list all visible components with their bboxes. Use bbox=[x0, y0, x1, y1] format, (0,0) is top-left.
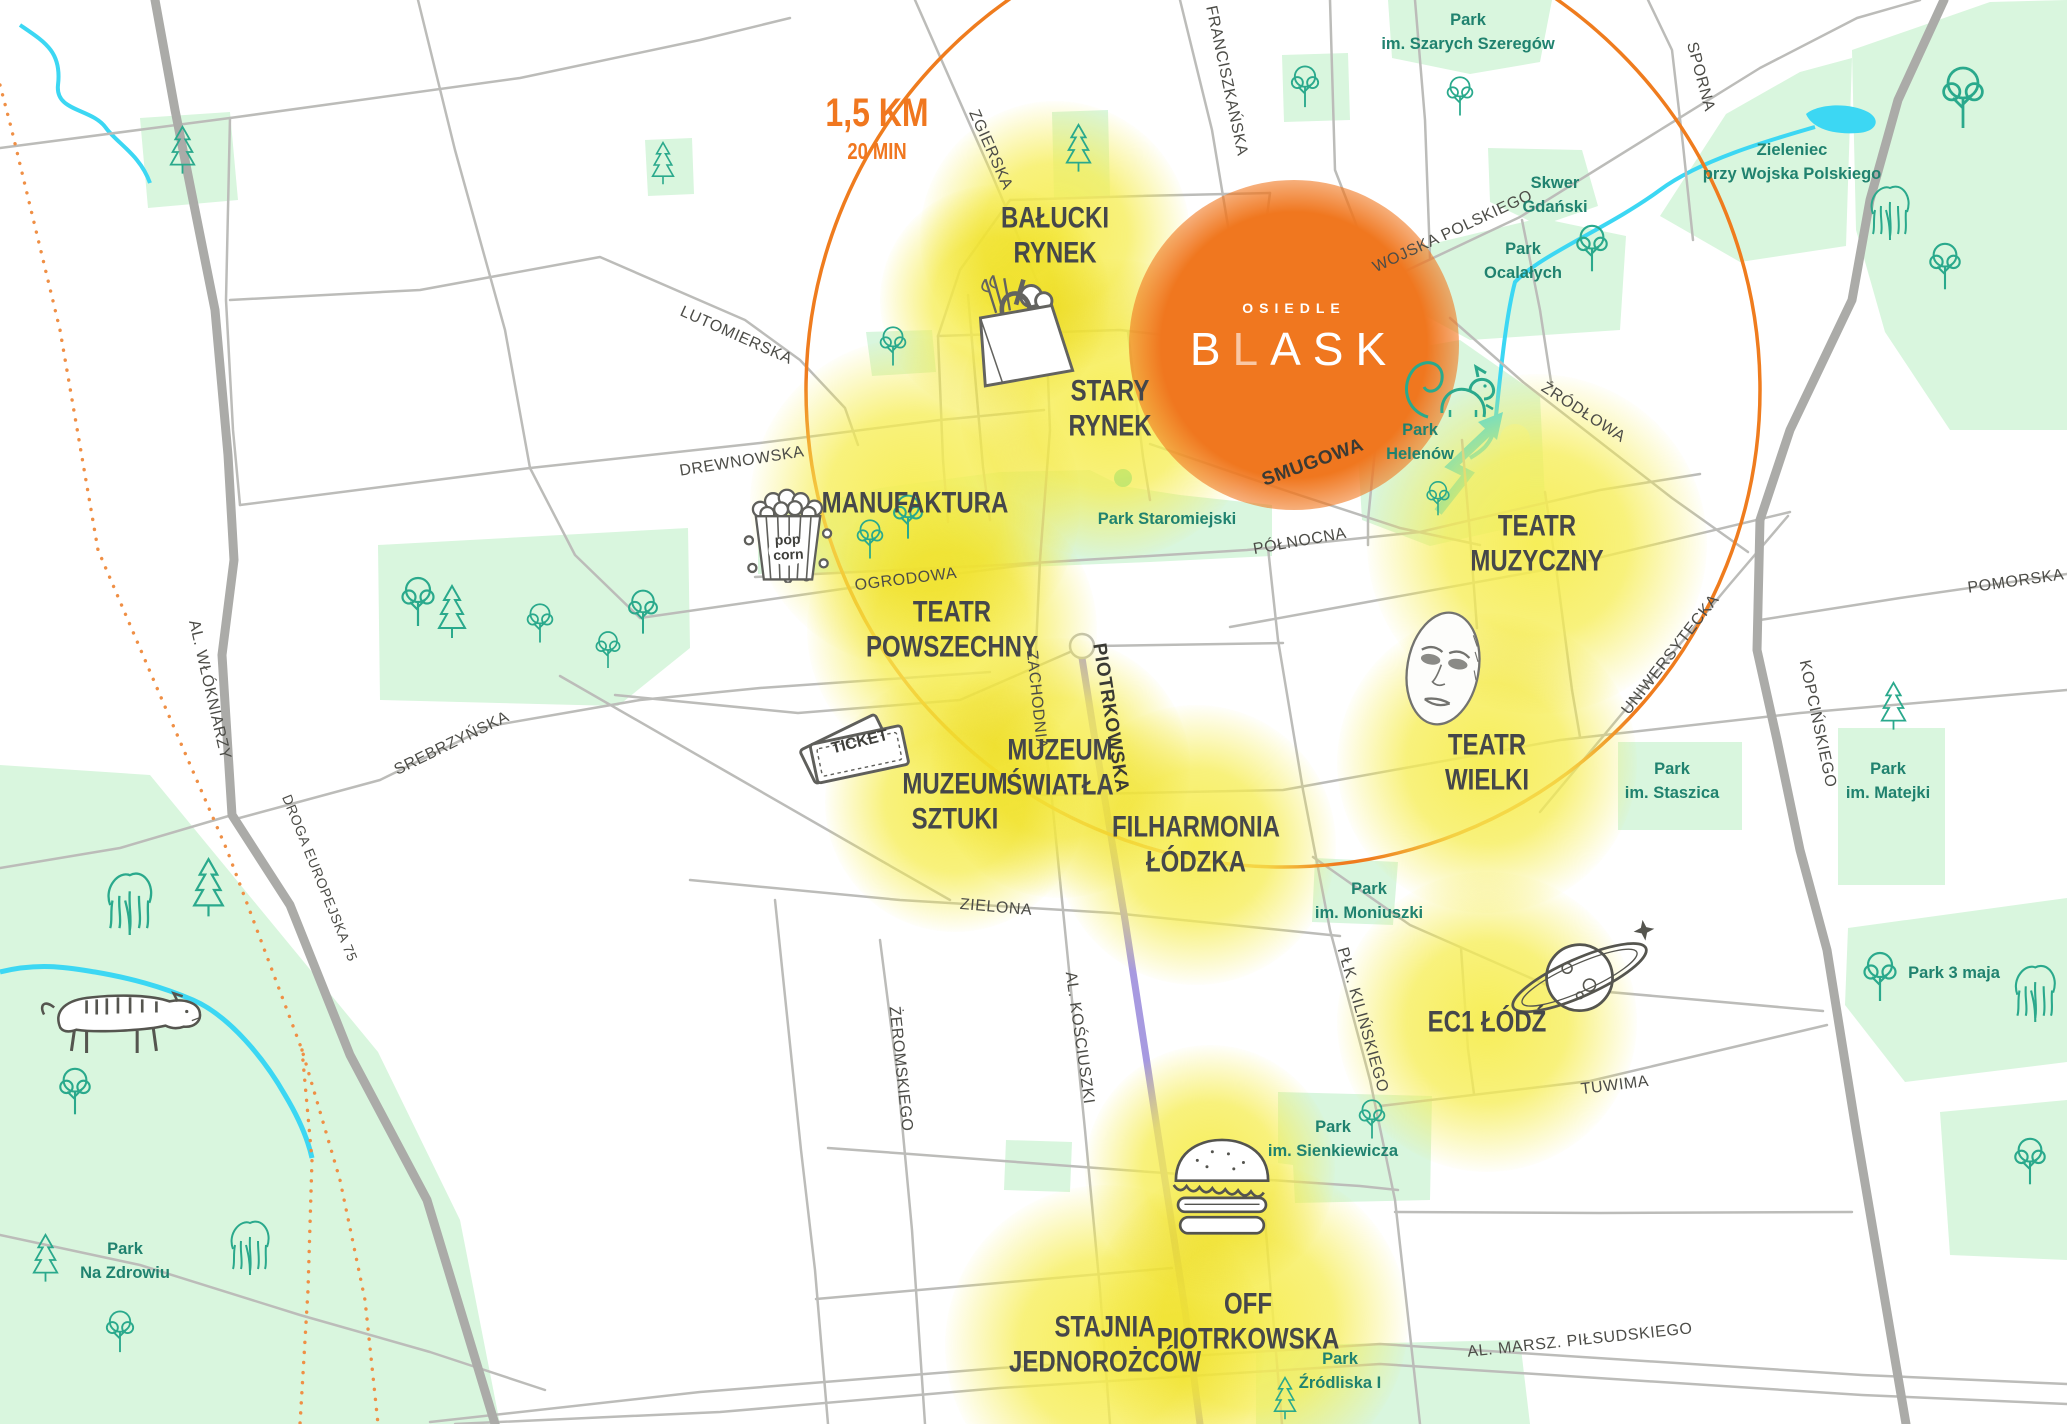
street-label--eromskiego: ŻEROMSKIEGO bbox=[884, 1006, 915, 1133]
attraction-label-teatr-muzyczny-line: MUZYCZNY bbox=[1470, 544, 1603, 579]
attraction-label-off-piotrkowska-line: OFF bbox=[1157, 1287, 1340, 1322]
park-label-skwer-gda-ski-line: Skwer bbox=[1522, 172, 1587, 196]
round-tree-icon bbox=[1860, 949, 1900, 1001]
street-label-kopci-skiego-line: KOPCIŃSKIEGO bbox=[1795, 659, 1840, 790]
attraction-label-muzeum-sztuki: MUZEUMSZTUKI bbox=[902, 767, 1007, 838]
illustration-text: popcorn bbox=[772, 532, 804, 563]
park-label-park-na-zdrowiu-line: Na Zdrowiu bbox=[80, 1262, 170, 1286]
plac-wolnosci-roundabout bbox=[1070, 634, 1094, 658]
attraction-label-stajnia-jednorożców-line: STAJNIA bbox=[1009, 1310, 1201, 1345]
conifer-tree-icon bbox=[1065, 123, 1092, 173]
attraction-label-teatr-powszechny-line: POWSZECHNY bbox=[866, 630, 1038, 665]
attraction-label-ec1 łódź-line: EC1 ŁÓDŹ bbox=[1428, 1004, 1547, 1039]
street-label--eromskiego-line: ŻEROMSKIEGO bbox=[884, 1006, 915, 1133]
park-label-park-im-moniuszki-line: im. Moniuszki bbox=[1315, 902, 1423, 926]
attraction-label-teatr-wielki-line: TEATR bbox=[1445, 728, 1529, 763]
illustration-text-line: corn bbox=[773, 546, 804, 562]
street-label-franciszka-ska: FRANCISZKAŃSKA bbox=[1201, 4, 1250, 158]
street-label-zielona-line: ZIELONA bbox=[959, 896, 1033, 920]
attraction-label-muzeum-sztuki-line: SZTUKI bbox=[902, 802, 1007, 837]
attraction-glow bbox=[1056, 705, 1336, 985]
street-label-p-k-kili-skiego-line: PŁK. KILIŃSKIEGO bbox=[1333, 945, 1392, 1094]
attraction-label-off-piotrkowska: OFFPIOTRKOWSKA bbox=[1157, 1287, 1340, 1358]
willow-tree-icon bbox=[2009, 959, 2062, 1022]
park-label-park-im-matejki: Parkim. Matejki bbox=[1846, 758, 1930, 806]
street-label-uniwersytecka: UNIWERSYTECKA bbox=[1619, 591, 1724, 718]
street-label-uniwersytecka-line: UNIWERSYTECKA bbox=[1619, 591, 1724, 718]
street-label-p-k-kili-skiego: PŁK. KILIŃSKIEGO bbox=[1333, 945, 1392, 1094]
attraction-glow bbox=[807, 485, 1097, 775]
park-label-park-im-sienkiewicza-line: im. Sienkiewicza bbox=[1268, 1140, 1398, 1164]
willow-tree-icon bbox=[1865, 180, 1915, 240]
attraction-label-muzeum-światła: MUZEUMŚWIATŁA bbox=[1006, 733, 1114, 804]
round-tree-icon bbox=[854, 517, 886, 559]
railway-dotted-line bbox=[0, 85, 378, 1424]
street-label-zachodnia-line: ZACHODNIA bbox=[1022, 650, 1050, 751]
street-label-zachodnia: ZACHODNIA bbox=[1022, 650, 1050, 751]
street-label-kopci-skiego: KOPCIŃSKIEGO bbox=[1795, 659, 1840, 790]
saturn-icon bbox=[1493, 909, 1672, 1041]
attraction-label-filharmonia-łódzka: FILHARMONIAŁÓDZKA bbox=[1112, 810, 1280, 881]
attraction-label-stary-rynek-line: RYNEK bbox=[1068, 409, 1151, 444]
park-label-park-im-sienkiewicza: Parkim. Sienkiewicza bbox=[1268, 1116, 1398, 1164]
round-tree-icon bbox=[524, 601, 556, 643]
park-label-zieleniec-przy-wojska-polskiego: Zieleniecprzy Wojska Polskiego bbox=[1703, 139, 1882, 187]
street-label-srebrzy-ska: SREBRZYŃSKA bbox=[392, 708, 513, 779]
street-label-al-marsz-pi-sudskiego-line: AL. MARSZ. PIŁSUDSKIEGO bbox=[1467, 1320, 1694, 1362]
round-tree-icon bbox=[398, 574, 438, 626]
attraction-label-muzeum-światła-line: ŚWIATŁA bbox=[1006, 768, 1114, 803]
attraction-glow bbox=[1337, 872, 1637, 1172]
piotrkowska-highlight-line bbox=[1082, 658, 1200, 1424]
water-features bbox=[0, 25, 1876, 1158]
willow-tree-icon bbox=[225, 1215, 275, 1275]
street-label-zgierska-line: ZGIERSKA bbox=[964, 107, 1015, 193]
illustration-text: TICKET bbox=[830, 728, 890, 758]
street-label-piotrkowska: PIOTRKOWSKA bbox=[1087, 642, 1132, 795]
round-tree-icon bbox=[1356, 1097, 1388, 1139]
round-tree-icon bbox=[103, 1308, 137, 1352]
street-label-al-w-kniarzy: AL. WŁÓKNIARZY bbox=[184, 618, 234, 761]
attraction-label-manufaktura: MANUFAKTURA bbox=[822, 485, 1009, 520]
park-label-park-ocala-ych-line: Park bbox=[1484, 238, 1562, 262]
attraction-label-teatr-powszechny: TEATRPOWSZECHNY bbox=[866, 595, 1038, 666]
park-label-park-im-szarych-szereg-w-line: im. Szarych Szeregów bbox=[1381, 33, 1554, 57]
round-tree-icon bbox=[1288, 63, 1322, 107]
illustrations-layer bbox=[0, 0, 2067, 1424]
attraction-label-bałucki-rynek-line: RYNEK bbox=[1001, 236, 1109, 271]
attraction-label-stajnia-jednorożców-line: JEDNOROŻCÓW bbox=[1009, 1345, 1201, 1380]
willow-tree-icon bbox=[101, 866, 159, 935]
round-tree-icon bbox=[56, 1065, 94, 1114]
park-label-park-im-szarych-szereg-w-line: Park bbox=[1381, 9, 1554, 33]
illustration-text-line: TICKET bbox=[830, 728, 890, 758]
street-label-pomorska: POMORSKA bbox=[1967, 566, 2066, 597]
street-label-al-marsz-pi-sudskiego: AL. MARSZ. PIŁSUDSKIEGO bbox=[1467, 1320, 1694, 1362]
street-label-pomorska-line: POMORSKA bbox=[1967, 566, 2066, 597]
conifer-tree-icon bbox=[1880, 681, 1907, 731]
park-label-zieleniec-przy-wojska-polskiego-line: przy Wojska Polskiego bbox=[1703, 163, 1882, 187]
park-label-park-im-moniuszki: Parkim. Moniuszki bbox=[1315, 878, 1423, 926]
attraction-label-filharmonia-łódzka-line: ŁÓDZKA bbox=[1112, 845, 1280, 880]
attraction-glow bbox=[945, 1185, 1265, 1424]
roads-major bbox=[155, 0, 1944, 1424]
attraction-label-manufaktura-line: MANUFAKTURA bbox=[822, 485, 1009, 520]
street-label-lutomierska: LUTOMIERSKA bbox=[677, 303, 795, 369]
attraction-label-bałucki-rynek-line: BAŁUCKI bbox=[1001, 201, 1109, 236]
round-tree-icon bbox=[2011, 1135, 2049, 1184]
round-tree-icon bbox=[890, 492, 926, 539]
theater-mask-icon bbox=[1387, 597, 1500, 738]
conifer-tree-icon bbox=[437, 584, 467, 640]
attraction-label-stajnia-jednorożców: STAJNIAJEDNOROŻCÓW bbox=[1009, 1310, 1201, 1381]
grocery-bag-icon bbox=[956, 258, 1080, 391]
round-tree-icon bbox=[1424, 479, 1452, 515]
park-label-skwer-gda-ski-line: Gdański bbox=[1522, 196, 1587, 220]
park-label-park-im-matejki-line: im. Matejki bbox=[1846, 782, 1930, 806]
roads-thin bbox=[0, 0, 2067, 1424]
park-label-park-im-staszica: Parkim. Staszica bbox=[1625, 758, 1719, 806]
attraction-glow bbox=[1337, 613, 1637, 913]
street-label-al-w-kniarzy-line: AL. WŁÓKNIARZY bbox=[184, 618, 234, 761]
attraction-label-teatr-muzyczny: TEATRMUZYCZNY bbox=[1470, 509, 1603, 580]
street-label-piotrkowska-line: PIOTRKOWSKA bbox=[1087, 642, 1132, 795]
park-label-park-ocala-ych-line: Ocalałych bbox=[1484, 262, 1562, 286]
park-label-park-im-staszica-line: im. Staszica bbox=[1625, 782, 1719, 806]
attraction-label-bałucki-rynek: BAŁUCKIRYNEK bbox=[1001, 201, 1109, 272]
park-label-park-im-szarych-szereg-w: Parkim. Szarych Szeregów bbox=[1381, 9, 1554, 57]
street-label-drewnowska-line: DREWNOWSKA bbox=[678, 443, 805, 480]
park-label-park-na-zdrowiu-line: Park bbox=[80, 1238, 170, 1262]
attraction-glow bbox=[1088, 1162, 1408, 1424]
park-label-park-im-moniuszki-line: Park bbox=[1315, 878, 1423, 902]
attraction-label-teatr-muzyczny-line: TEATR bbox=[1470, 509, 1603, 544]
park-label-park-staromiejski-line: Park Staromiejski bbox=[1098, 508, 1237, 532]
park-label-park-im-matejki-line: Park bbox=[1846, 758, 1930, 782]
street-label-srebrzy-ska-line: SREBRZYŃSKA bbox=[392, 708, 513, 779]
park-label-park-r-dliska-i: ParkŹródliska I bbox=[1299, 1348, 1382, 1396]
tickets-icon bbox=[794, 702, 922, 795]
city-map: 1,5 KM 20 MIN OSIEDLE BLASK BAŁUCKIRYNEK… bbox=[0, 0, 2067, 1424]
park-label-park-staromiejski: Park Staromiejski bbox=[1098, 508, 1237, 532]
conifer-tree-icon bbox=[192, 857, 225, 919]
street-label-sporna-line: SPORNA bbox=[1682, 40, 1718, 113]
street-label-sporna: SPORNA bbox=[1682, 40, 1718, 113]
park-label-park-im-sienkiewicza-line: Park bbox=[1268, 1116, 1398, 1140]
street-label-al-ko-ciuszki-line: AL. KOŚCIUSZKI bbox=[1061, 971, 1097, 1106]
attraction-label-teatr-wielki-line: WIELKI bbox=[1445, 763, 1529, 798]
street-label-zgierska: ZGIERSKA bbox=[964, 107, 1015, 193]
labels-layer: 1,5 KM 20 MIN OSIEDLE BLASK BAŁUCKIRYNEK… bbox=[0, 0, 2067, 1424]
popcorn-icon bbox=[742, 462, 834, 583]
street-label-franciszka-ska-line: FRANCISZKAŃSKA bbox=[1201, 4, 1250, 158]
street-label-drewnowska: DREWNOWSKA bbox=[678, 443, 805, 480]
blask-location-dot bbox=[1129, 180, 1459, 510]
burger-icon bbox=[1163, 1131, 1281, 1239]
park-areas bbox=[0, 0, 2067, 1424]
street-label-tuwima: TUWIMA bbox=[1580, 1073, 1650, 1099]
round-tree-icon bbox=[1573, 222, 1611, 271]
park-label-park-im-staszica-line: Park bbox=[1625, 758, 1719, 782]
round-tree-icon bbox=[593, 629, 623, 668]
street-label-lutomierska-line: LUTOMIERSKA bbox=[677, 303, 795, 369]
glow-layer bbox=[0, 0, 2067, 1424]
park-label-zieleniec-przy-wojska-polskiego-line: Zieleniec bbox=[1703, 139, 1882, 163]
street-label-zielona: ZIELONA bbox=[959, 896, 1033, 920]
conifer-tree-icon bbox=[169, 125, 196, 175]
street-label--r-d-owa: ŹRÓDŁOWA bbox=[1538, 379, 1629, 447]
radius-distance: 1,5 KM bbox=[825, 91, 928, 136]
tiger-icon bbox=[36, 969, 208, 1055]
street-label-p-nocna: PÓŁNOCNA bbox=[1252, 525, 1348, 559]
attraction-label-ec1 łódź: EC1 ŁÓDŹ bbox=[1428, 1004, 1547, 1039]
street-label-droga-europejska-75-line: DROGA EUROPEJSKA 75 bbox=[279, 792, 361, 964]
attraction-glow bbox=[880, 185, 1110, 415]
round-tree-icon bbox=[625, 587, 661, 634]
street-label-al-ko-ciuszki: AL. KOŚCIUSZKI bbox=[1061, 971, 1097, 1106]
radius-time: 20 MIN bbox=[825, 138, 928, 165]
attraction-label-teatr-wielki: TEATRWIELKI bbox=[1445, 728, 1529, 799]
map-base-layer bbox=[0, 0, 2067, 1424]
street-label-tuwima-line: TUWIMA bbox=[1580, 1073, 1650, 1099]
street-label--r-d-owa-line: ŹRÓDŁOWA bbox=[1538, 379, 1629, 447]
park-label-park-r-dliska-i-line: Źródliska I bbox=[1299, 1372, 1382, 1396]
street-label-p-nocna-line: PÓŁNOCNA bbox=[1252, 525, 1348, 559]
conifer-tree-icon bbox=[32, 1233, 59, 1283]
street-label-ogrodowa: OGRODOWA bbox=[854, 565, 958, 595]
street-label-ogrodowa-line: OGRODOWA bbox=[854, 565, 958, 595]
street-label-droga-europejska-75: DROGA EUROPEJSKA 75 bbox=[279, 792, 361, 964]
park-label-park-3-maja: Park 3 maja bbox=[1908, 962, 2000, 986]
round-tree-icon bbox=[1926, 240, 1964, 289]
attraction-glow bbox=[750, 338, 1080, 668]
attraction-glow bbox=[1085, 1045, 1335, 1295]
attraction-label-muzeum-światła-line: MUZEUM bbox=[1006, 733, 1114, 768]
attraction-glow bbox=[930, 638, 1190, 898]
conifer-tree-icon bbox=[1273, 1376, 1297, 1421]
attraction-label-teatr-powszechny-line: TEATR bbox=[866, 595, 1038, 630]
park-label-skwer-gda-ski: SkwerGdański bbox=[1522, 172, 1587, 220]
park-label-park-na-zdrowiu: ParkNa Zdrowiu bbox=[80, 1238, 170, 1286]
park-label-park-ocala-ych: ParkOcalałych bbox=[1484, 238, 1562, 286]
radius-badge: 1,5 KM 20 MIN bbox=[813, 91, 942, 165]
attraction-label-off-piotrkowska-line: PIOTRKOWSKA bbox=[1157, 1322, 1340, 1357]
park-label-park-r-dliska-i-line: Park bbox=[1299, 1348, 1382, 1372]
park-label-park-3-maja-line: Park 3 maja bbox=[1908, 962, 2000, 986]
attraction-label-muzeum-sztuki-line: MUZEUM bbox=[902, 767, 1007, 802]
attraction-label-filharmonia-łódzka-line: FILHARMONIA bbox=[1112, 810, 1280, 845]
round-tree-icon bbox=[1444, 74, 1476, 116]
attraction-glow bbox=[825, 672, 1085, 932]
illustration-text-line: pop bbox=[772, 532, 803, 548]
conifer-tree-icon bbox=[651, 141, 675, 186]
round-tree-icon bbox=[877, 324, 909, 366]
round-tree-icon bbox=[1938, 63, 1988, 128]
